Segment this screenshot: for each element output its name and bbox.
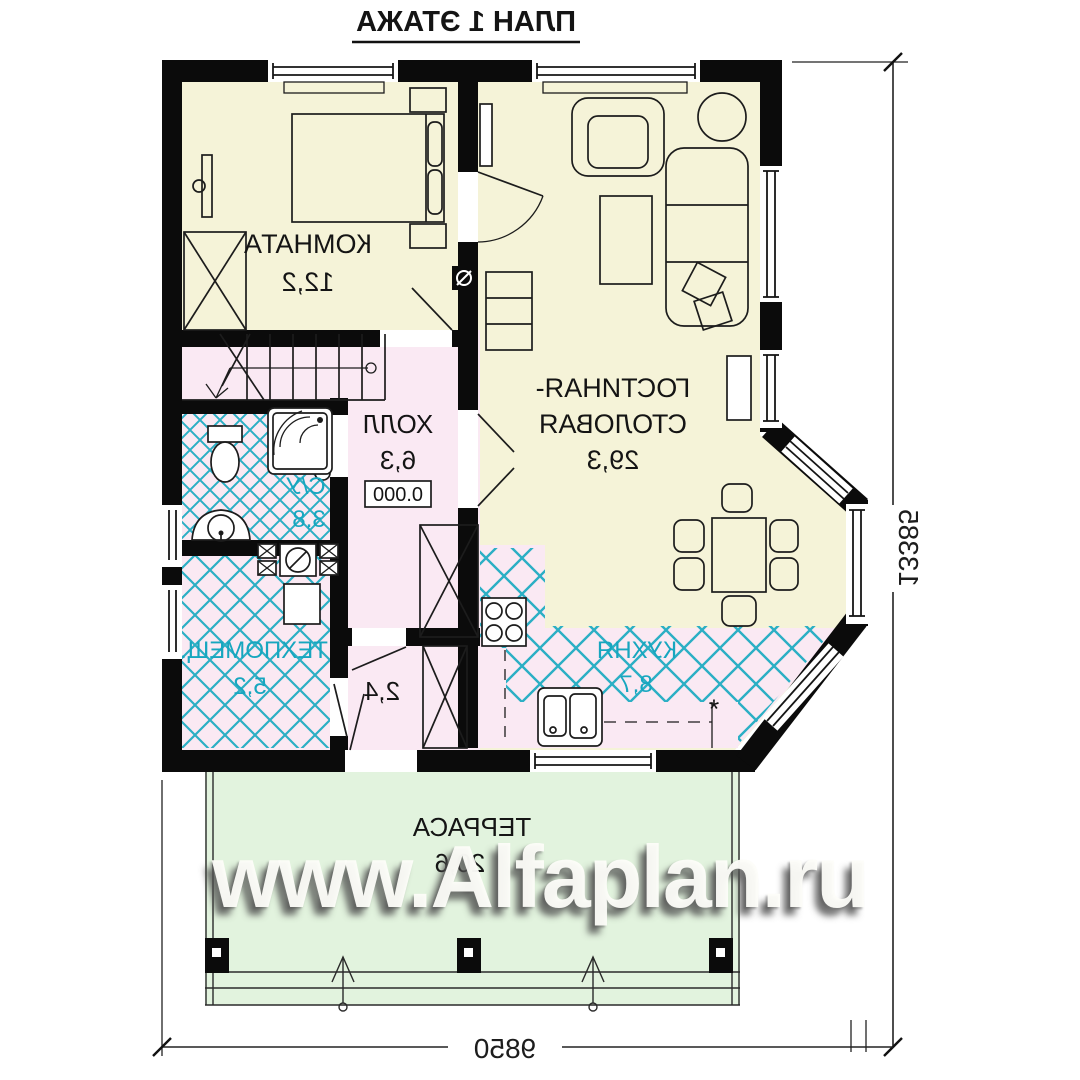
terrace-post <box>709 938 733 973</box>
living-area: 29,3 <box>587 445 640 475</box>
terrace-name: ТЕРРАСА <box>412 812 531 842</box>
bathroom-area: 3,8 <box>292 506 325 533</box>
bathroom-name: С/У <box>286 473 326 500</box>
left-wall-window-upper <box>162 505 182 567</box>
dimension-width: 9850 <box>474 1033 536 1064</box>
techroom-name: ТЕХПОМЕЩ. <box>180 637 328 664</box>
kitchen-area: 8,7 <box>619 671 652 698</box>
level-mark: 0.000 <box>373 484 423 506</box>
terrace-post <box>457 938 481 973</box>
boiler <box>284 584 320 624</box>
kitchen-name: КУХНЯ <box>597 637 677 664</box>
bedroom-area: 12,2 <box>282 267 335 297</box>
left-wall-window-lower <box>162 585 182 659</box>
vent-icon <box>452 266 476 290</box>
radiator <box>727 356 751 420</box>
bay-window-right <box>846 504 868 624</box>
living-name-line1: ГОСТИНАЯ- <box>536 373 691 403</box>
kitchen-window <box>530 750 656 772</box>
kitchen-note-asterisk: * <box>708 694 719 724</box>
terrace-area: 20,6 <box>435 848 486 878</box>
hall-area: 6,3 <box>380 445 416 475</box>
floor-plan-canvas: ПЛАН 1 ЭТАЖА КОМНАТА 12,2 ГОСТИНАЯ- СТОЛ… <box>0 0 1080 1080</box>
right-wall-window-upper <box>760 166 782 302</box>
sink-icon <box>538 688 602 746</box>
terrace <box>205 772 740 1011</box>
washing-machine-icon <box>280 544 316 576</box>
floor-plan-page: ПЛАН 1 ЭТАЖА КОМНАТА 12,2 ГОСТИНАЯ- СТОЛ… <box>0 0 1080 1080</box>
stove-icon <box>482 598 526 646</box>
toilet-icon <box>208 426 242 482</box>
entry-area: 2,4 <box>364 676 400 706</box>
dimension-depth: 13385 <box>893 509 924 587</box>
right-wall-window-lower <box>760 350 782 428</box>
plan-title: ПЛАН 1 ЭТАЖА <box>356 6 576 38</box>
hall-name: ХОЛЛ <box>363 409 434 439</box>
bedroom-name: КОМНАТА <box>244 229 372 259</box>
terrace-post <box>205 938 229 973</box>
techroom-area: 5,2 <box>233 673 266 700</box>
shower-icon <box>268 408 332 474</box>
living-name-line2: СТОЛОВАЯ <box>539 409 687 439</box>
tv-stand <box>480 104 492 166</box>
